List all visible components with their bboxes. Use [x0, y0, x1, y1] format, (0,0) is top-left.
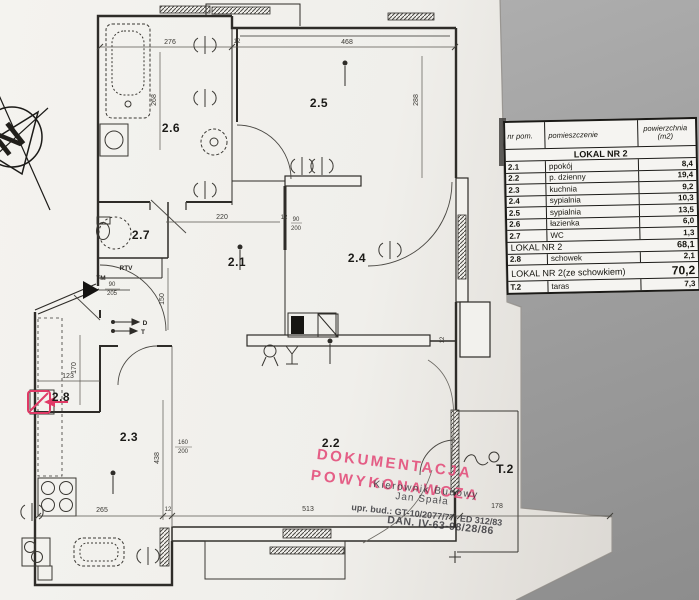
- fraction-160: 160: [178, 440, 189, 446]
- row-name: sypialnia: [547, 205, 640, 217]
- dim-12b: 12: [281, 215, 288, 221]
- dim-170: 170: [71, 362, 78, 374]
- room-label-2-6: 2.6: [162, 121, 180, 135]
- row-name: taras: [548, 279, 641, 292]
- fraction-200: 200: [291, 226, 302, 232]
- total-label: LOKAL NR 2(ze schowkiem): [508, 263, 641, 281]
- header-nr-pom: nr pom.: [505, 122, 546, 149]
- fixtures-bathroom: [97, 24, 228, 249]
- row-area: 6,0: [640, 215, 697, 227]
- header-powierzchnia: powierzchnia (m2): [638, 119, 696, 146]
- row-name: łazienka: [547, 217, 640, 229]
- room-label-2-1: 2.1: [228, 255, 246, 269]
- row-nr: 2.3: [506, 184, 546, 195]
- fixtures-kitchen: [21, 318, 159, 566]
- doors: [74, 125, 455, 475]
- dim-513: 513: [302, 506, 314, 513]
- row-area: 1,3: [640, 227, 697, 239]
- dim-12a: 12: [234, 39, 241, 45]
- row-name: WC: [547, 228, 640, 240]
- dim-150: 150: [159, 293, 166, 305]
- rtv-label: RTV: [120, 265, 134, 272]
- total-value: 70,2: [641, 262, 698, 278]
- dim-12c: 12: [165, 507, 172, 513]
- dim-265: 265: [96, 507, 108, 514]
- north-label: N: [0, 115, 33, 165]
- room-label-2-3: 2.3: [120, 430, 138, 444]
- fraction-205: 205: [107, 291, 118, 297]
- dim-288: 288: [413, 94, 420, 106]
- dim-12d: 12: [440, 336, 446, 343]
- dim-468: 468: [341, 39, 353, 46]
- row-name: ppokój: [546, 159, 639, 171]
- row-nr: 2.7: [507, 230, 547, 241]
- subtotal-value: 68,1: [641, 238, 698, 250]
- row-area: 8,4: [639, 158, 696, 170]
- room-label-2-4: 2.4: [348, 251, 366, 265]
- room-labels: 2.1 2.2 2.3 2.4 2.5 2.6 2.7 2.8 T.2 RTV …: [52, 96, 514, 476]
- row-area: 10,3: [640, 192, 697, 204]
- row-nr: T.2: [508, 281, 548, 293]
- row-nr: 2.2: [506, 173, 546, 184]
- d-label: D: [143, 320, 148, 327]
- row-area: 9,2: [639, 181, 696, 193]
- dim-276: 276: [164, 39, 176, 46]
- row-nr: 2.1: [506, 161, 546, 172]
- dim-178: 178: [491, 503, 503, 510]
- row-area: 19,4: [639, 169, 696, 181]
- fraction-90b: 90: [109, 282, 116, 288]
- room-label-2-8: 2.8: [52, 390, 70, 404]
- dim-268: 268: [151, 94, 158, 106]
- room-label-2-5: 2.5: [310, 96, 328, 110]
- row-name: sypialnia: [547, 194, 640, 206]
- header-pomieszczenie: pomieszczenie: [545, 120, 639, 148]
- row-nr: 2.6: [507, 219, 547, 230]
- fraction-90: 90: [293, 217, 300, 223]
- dim-438: 438: [154, 452, 161, 464]
- row-name: schowek: [548, 252, 641, 264]
- row-area: 13,5: [640, 204, 697, 216]
- tm-label: TM: [96, 275, 105, 282]
- dim-220: 220: [216, 214, 228, 221]
- north-arrow-icon: N: [0, 84, 50, 210]
- fraction-200b: 200: [178, 449, 189, 455]
- header-powierzchnia-line2: (m2): [658, 132, 674, 141]
- room-label-t2: T.2: [496, 462, 514, 476]
- scanned-floor-plan-page: N 276 12 468 288 268 220 12 150 123: [0, 0, 699, 600]
- dt-arrows: [112, 319, 140, 334]
- row-nr: 2.8: [508, 254, 548, 265]
- row-nr: 2.4: [507, 196, 547, 207]
- table-header-row: nr pom. pomieszczenie powierzchnia (m2): [505, 119, 696, 149]
- t-label: T: [141, 329, 145, 336]
- vent-shaft: [206, 4, 338, 337]
- floor-plan-drawing: N 276 12 468 288 268 220 12 150 123: [0, 0, 699, 600]
- row-name: kuchnia: [546, 182, 639, 194]
- row-nr: 2.5: [507, 207, 547, 218]
- row-area: 7,3: [641, 278, 698, 290]
- room-label-2-7: 2.7: [132, 228, 150, 242]
- room-area-table: nr pom. pomieszczenie powierzchnia (m2) …: [503, 117, 699, 295]
- paper-edge: [499, 0, 612, 600]
- row-area: 2,1: [641, 250, 698, 262]
- row-name: p. dzienny: [546, 171, 639, 183]
